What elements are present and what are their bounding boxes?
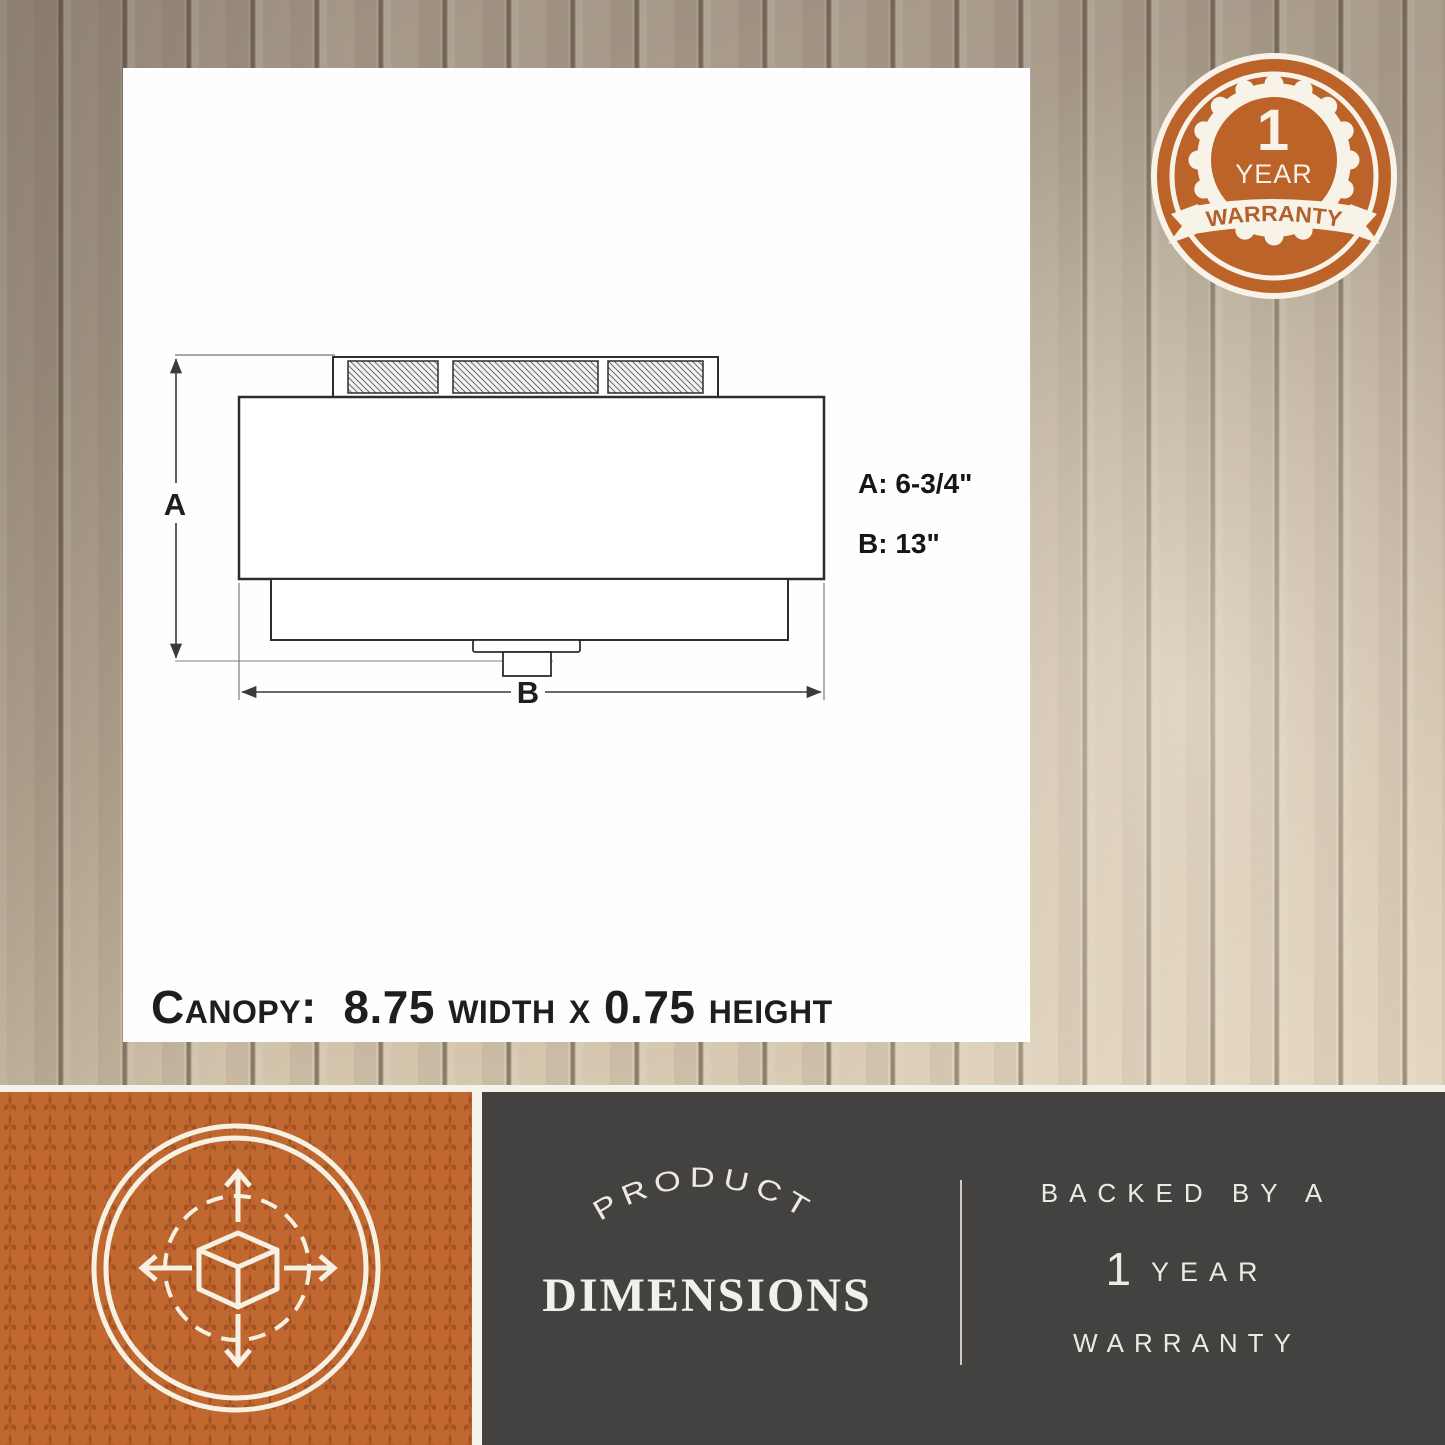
dim-label-a: A [164, 487, 186, 522]
warranty-text-section: BACKED BY A 1YEAR WARRANTY [982, 1092, 1392, 1445]
one-year-number: 1 [1105, 1243, 1133, 1295]
product-arc-text: PRODUCT [587, 1162, 820, 1227]
hatch-box-center [453, 361, 598, 393]
infographic-canvas: A B A: 6-3/4" B: 13" Canopy: 8.75 width … [0, 0, 1445, 1445]
hatch-box-right [608, 361, 703, 393]
one-year-line: 1YEAR [982, 1242, 1392, 1296]
fixture-diffuser [271, 579, 788, 640]
badge-year: YEAR [1235, 159, 1313, 189]
canopy-note: Canopy: 8.75 width x 0.75 height [151, 980, 1011, 1034]
fixture-finial-knob [503, 652, 551, 676]
fixture-finial-plate [473, 640, 580, 652]
hatch-box-left [348, 361, 438, 393]
dimensions-icon-tile [0, 1092, 472, 1445]
dimension-diagram: A B A: 6-3/4" B: 13" [123, 68, 1030, 1042]
product-arc-wrap: PRODUCT [581, 1144, 827, 1244]
bottom-strip: PRODUCT DIMENSIONS BACKED BY A 1YEAR WAR… [0, 1085, 1445, 1445]
badge-number: 1 [1257, 98, 1289, 163]
warranty-badge: 1 YEAR WARRANTY [1150, 52, 1398, 300]
product-dimensions-section: PRODUCT DIMENSIONS BACKED BY A 1YEAR WAR… [482, 1092, 1445, 1445]
dimensions-title: DIMENSIONS [482, 1268, 932, 1323]
fixture-body [239, 397, 824, 579]
one-year-text: YEAR [1151, 1257, 1269, 1287]
dim-label-b: B [517, 675, 539, 710]
section-divider [960, 1180, 962, 1365]
dim-value-a: A: 6-3/4" [858, 468, 972, 499]
dim-value-b: B: 13" [858, 528, 940, 559]
product-panel: A B A: 6-3/4" B: 13" Canopy: 8.75 width … [123, 68, 1030, 1042]
backed-by-line: BACKED BY A [982, 1178, 1392, 1209]
warranty-line: WARRANTY [982, 1328, 1392, 1359]
